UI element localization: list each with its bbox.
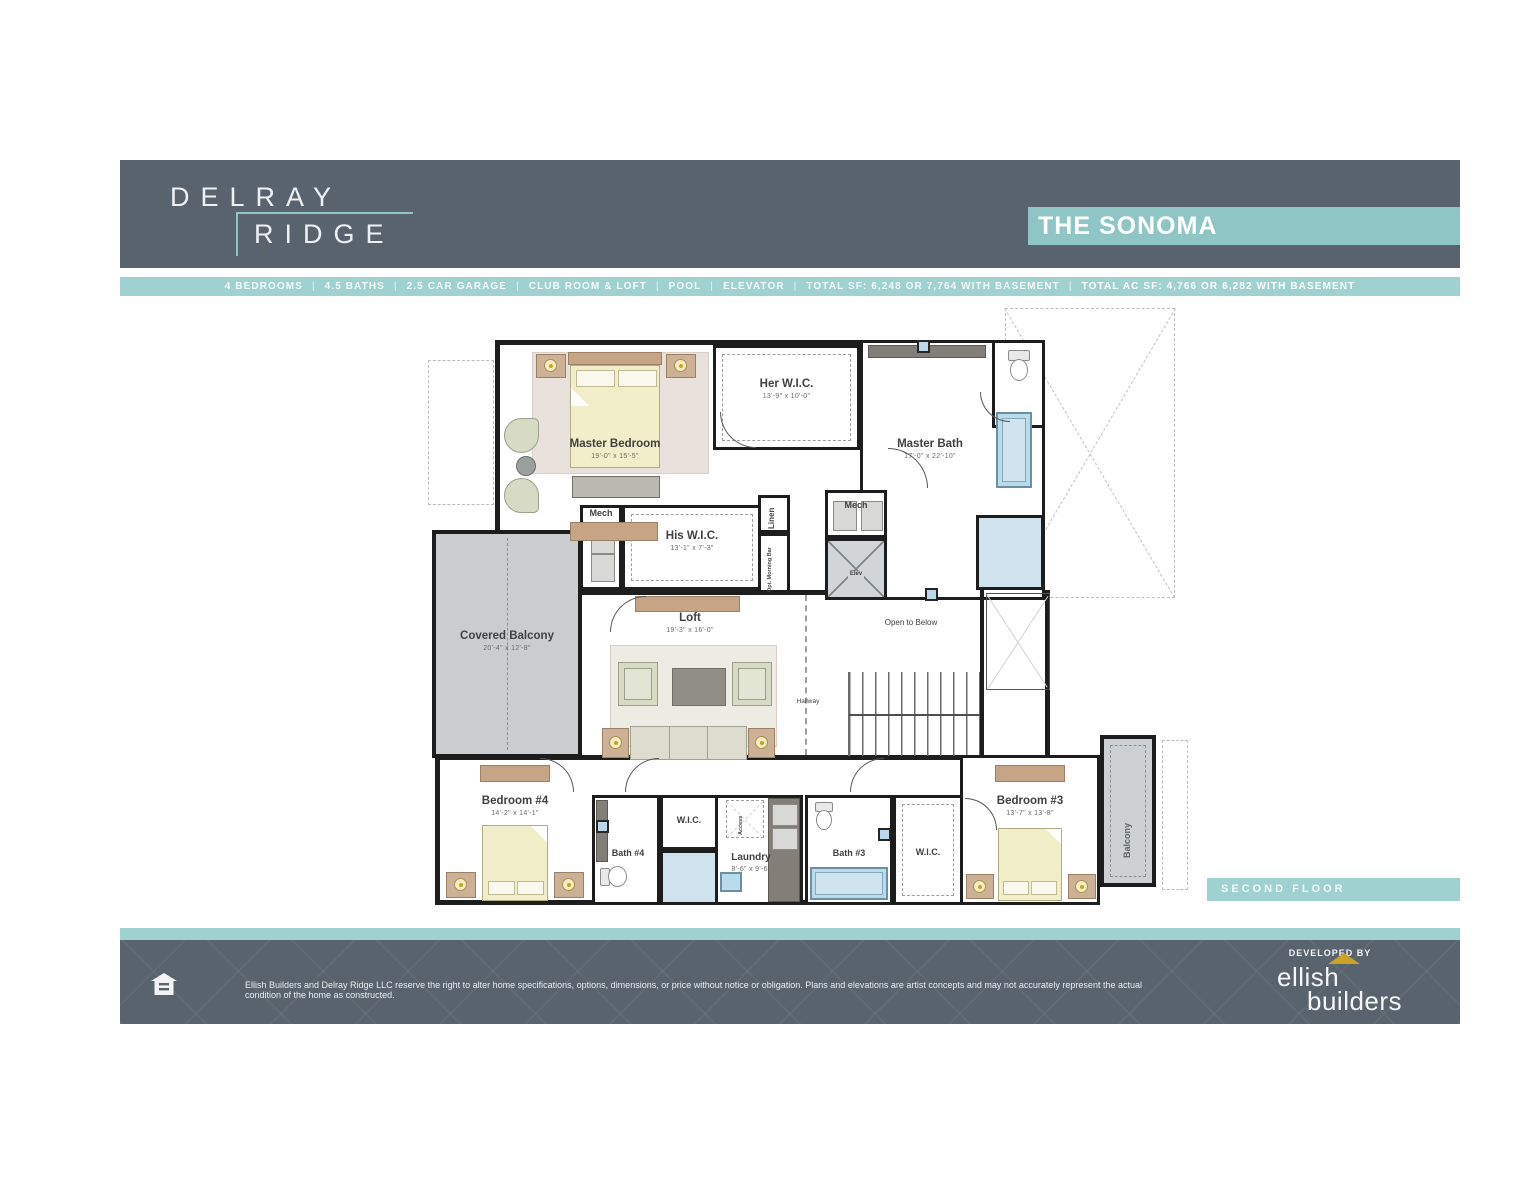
lamp-icon xyxy=(544,359,557,372)
loft-opening-line xyxy=(805,595,807,755)
sofa-cushion-line xyxy=(669,727,670,759)
room-label-mech-right: Mech xyxy=(825,500,887,510)
room-label-bedroom3: Bedroom #3 13'-7" x 13'-8" xyxy=(970,795,1090,818)
spec-item: 2.5 CAR GARAGE xyxy=(407,281,507,292)
room-label-morning-bar: Opt. Morning Bar xyxy=(767,536,773,592)
spec-item: 4.5 BATHS xyxy=(325,281,385,292)
pillow xyxy=(576,370,615,387)
disclaimer-text: Ellish Builders and Delray Ridge LLC res… xyxy=(245,980,1145,1000)
plan-name-banner: THE SONOMA xyxy=(1028,207,1460,245)
roof-outline-right xyxy=(1162,740,1188,890)
attic-access xyxy=(726,800,764,838)
lamp-icon xyxy=(454,878,467,891)
wall-niche xyxy=(925,588,938,601)
bed-fold xyxy=(571,388,589,406)
pillow xyxy=(1003,881,1029,895)
marketing-sheet: DELRAY RIDGE THE SONOMA 4 BEDROOMS| 4.5 … xyxy=(0,0,1536,1187)
spec-item: CLUB ROOM & LOFT xyxy=(529,281,647,292)
sofa xyxy=(630,726,747,760)
spec-separator: | xyxy=(394,281,398,292)
stairs xyxy=(848,672,981,756)
armchair xyxy=(732,662,772,706)
sofa-cushion-line xyxy=(707,727,708,759)
lamp-icon xyxy=(755,736,768,749)
room-label-master-bath: Master Bath 17'-0" x 22'-10" xyxy=(870,438,990,461)
bench xyxy=(572,476,660,498)
master-shower xyxy=(976,515,1044,590)
hvac-unit xyxy=(591,554,615,582)
washer xyxy=(772,804,798,826)
pillow xyxy=(517,881,544,895)
pillow xyxy=(488,881,515,895)
armchair xyxy=(618,662,658,706)
roof-outline-left xyxy=(428,360,494,505)
stair-wall xyxy=(980,590,984,760)
lamp-icon xyxy=(562,878,575,891)
spec-separator: | xyxy=(312,281,316,292)
bathtub-inner xyxy=(1002,418,1026,482)
footer: Ellish Builders and Delray Ridge LLC res… xyxy=(120,940,1460,1024)
logo-roof-icon xyxy=(1328,953,1360,964)
room-label-covered-balcony: Covered Balcony 20'-4" x 12'-8" xyxy=(447,630,567,653)
floor-badge: SECOND FLOOR xyxy=(1207,878,1460,901)
room-label-bath4: Bath #4 xyxy=(597,848,659,858)
header-banner: DELRAY RIDGE THE SONOMA xyxy=(120,160,1460,268)
bed xyxy=(482,825,548,901)
spec-separator: | xyxy=(1069,281,1073,292)
developer-logo: ellish builders xyxy=(1232,962,1432,1017)
wall-niche xyxy=(878,828,891,841)
spec-separator: | xyxy=(516,281,520,292)
room-label-wic3: W.I.C. xyxy=(893,842,963,860)
room-label-hallway: Hallway xyxy=(788,698,828,705)
wall-niche xyxy=(917,340,930,353)
bed-fold xyxy=(531,826,547,842)
room-label-her-wic: Her W.I.C. 13'-9" x 10'-0" xyxy=(723,378,850,401)
toilet-icon xyxy=(816,810,832,830)
armchair xyxy=(504,478,539,513)
floor-plan: Covered Balcony 20'-4" x 12'-8" Her W.I.… xyxy=(420,300,1192,934)
chair-cushion xyxy=(738,668,766,700)
spec-item: ELEVATOR xyxy=(723,281,785,292)
spec-separator: | xyxy=(656,281,660,292)
morning-bar xyxy=(758,533,790,593)
armchair xyxy=(504,418,539,453)
bathtub xyxy=(996,412,1032,488)
coffee-table xyxy=(672,668,726,706)
console-table xyxy=(635,596,740,612)
room-label-bedroom4: Bedroom #4 14'-2" x 14'-1" xyxy=(455,795,575,818)
footer-accent-strip xyxy=(120,928,1460,940)
logo-text-bottom: builders xyxy=(1307,986,1432,1017)
brand-name-bottom: RIDGE xyxy=(236,212,413,256)
spec-item: TOTAL SF: 6,248 OR 7,764 WITH BASEMENT xyxy=(806,281,1060,292)
spec-separator: | xyxy=(710,281,714,292)
laundry-sink xyxy=(720,872,742,892)
spec-item: 4 BEDROOMS xyxy=(225,281,303,292)
room-label-elevator: Elev xyxy=(825,562,887,580)
round-table xyxy=(516,456,536,476)
headboard xyxy=(568,352,662,365)
wall-niche xyxy=(596,820,609,833)
room-label-access: Access xyxy=(738,803,744,835)
chair-cushion xyxy=(624,668,652,700)
equal-housing-icon xyxy=(150,972,178,996)
room-label-bath3: Bath #3 xyxy=(810,848,888,858)
bed-fold xyxy=(1046,829,1061,844)
room-label-mech-left: Mech xyxy=(578,508,624,518)
bathtub xyxy=(810,867,888,900)
spec-separator: | xyxy=(794,281,798,292)
bathtub-inner xyxy=(815,872,883,895)
room-label-balcony: Balcony xyxy=(1122,768,1132,858)
spec-bar: 4 BEDROOMS| 4.5 BATHS| 2.5 CAR GARAGE| C… xyxy=(120,277,1460,296)
lamp-icon xyxy=(1075,880,1088,893)
lamp-icon xyxy=(609,736,622,749)
lamp-icon xyxy=(674,359,687,372)
spec-item: POOL xyxy=(669,281,702,292)
bath4-shower xyxy=(660,850,718,905)
pillow xyxy=(1031,881,1057,895)
room-label-wic4: W.I.C. xyxy=(660,815,718,825)
room-label-master-bedroom: Master Bedroom 19'-0" x 15'-5" xyxy=(560,438,670,461)
elevator-open-shaft xyxy=(986,593,1050,690)
pillow xyxy=(618,370,657,387)
toilet-icon xyxy=(1010,359,1028,381)
brand-name-top: DELRAY xyxy=(170,182,342,213)
toilet-icon xyxy=(608,866,627,887)
spec-item-highlight: TOTAL AC SF: 4,766 OR 6,282 WITH BASEMEN… xyxy=(1082,281,1356,292)
bed xyxy=(998,828,1062,901)
lamp-icon xyxy=(973,880,986,893)
mech-room-right xyxy=(825,490,887,538)
room-label-linen: Linen xyxy=(767,499,776,529)
room-label-laundry: Laundry 8'-6" x 9'-6" xyxy=(716,852,786,874)
room-label-open-to-below: Open to Below xyxy=(852,618,970,627)
dresser xyxy=(995,765,1065,782)
dryer xyxy=(772,828,798,850)
room-label-loft: Loft 19'-3" x 16'-0" xyxy=(625,612,755,635)
room-label-his-wic: His W.I.C. 13'-1" x 7'-3" xyxy=(632,530,752,553)
